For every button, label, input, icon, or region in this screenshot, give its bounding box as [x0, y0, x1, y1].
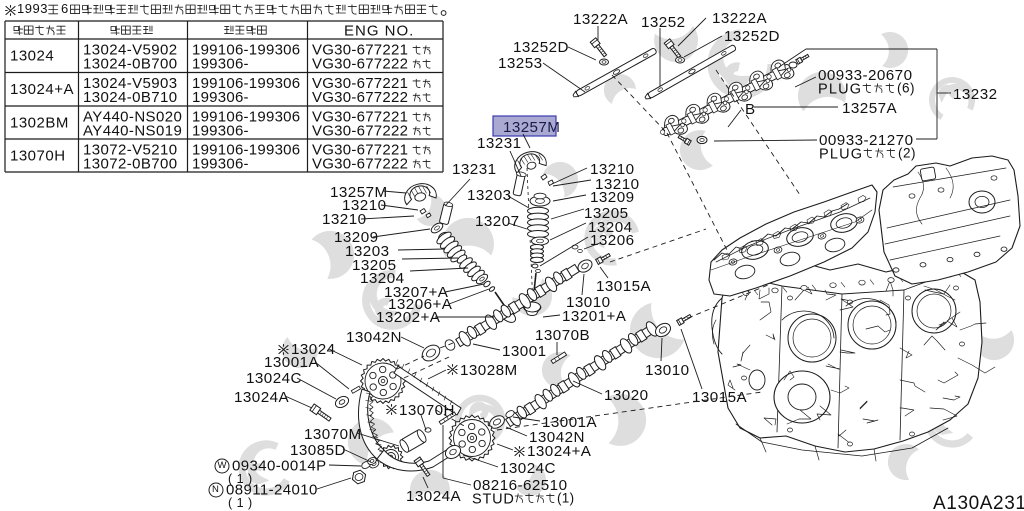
svg-text:13010: 13010: [566, 294, 610, 311]
svg-text:1993: 1993: [17, 1, 48, 16]
svg-text:A130A231: A130A231: [933, 493, 1024, 511]
svg-text:13015A: 13015A: [596, 278, 651, 295]
svg-text:STUD: STUD: [472, 491, 515, 507]
svg-text:6: 6: [61, 1, 68, 16]
svg-text:13070B: 13070B: [535, 327, 590, 344]
svg-text:13257A: 13257A: [842, 100, 897, 117]
svg-text:13072-0B700: 13072-0B700: [83, 156, 177, 173]
svg-text:W: W: [218, 460, 227, 471]
svg-text:13024C: 13024C: [500, 460, 556, 477]
svg-text:13253: 13253: [498, 55, 542, 72]
svg-text:13010: 13010: [645, 362, 689, 379]
svg-text:13024A: 13024A: [234, 389, 289, 406]
svg-text:199306-: 199306-: [192, 156, 249, 173]
svg-text:(6): (6): [897, 81, 915, 96]
svg-text:(2): (2): [898, 146, 916, 161]
svg-text:13015A: 13015A: [692, 389, 747, 406]
svg-text:13024+A: 13024+A: [527, 443, 592, 460]
svg-text:13001: 13001: [502, 343, 546, 360]
svg-text:13231: 13231: [452, 161, 496, 178]
svg-text:13042N: 13042N: [346, 329, 402, 346]
svg-text:13024+A: 13024+A: [10, 81, 74, 98]
svg-text:VG30-677222: VG30-677222: [312, 56, 408, 73]
svg-text:13252: 13252: [641, 14, 685, 31]
svg-text:13070M: 13070M: [304, 426, 362, 443]
svg-text:13210: 13210: [322, 211, 366, 228]
svg-text:13231: 13231: [477, 135, 521, 152]
svg-text:13020: 13020: [604, 387, 648, 404]
svg-text:ENG NO.: ENG NO.: [344, 23, 414, 40]
svg-text:13222A: 13222A: [573, 11, 628, 28]
svg-text:13024C: 13024C: [246, 370, 302, 387]
svg-text:13202+A: 13202+A: [376, 309, 441, 326]
svg-text:N: N: [212, 484, 219, 495]
svg-text:13085D: 13085D: [290, 442, 346, 459]
svg-text:PLUG: PLUG: [818, 81, 862, 97]
svg-text:AY440-NS019: AY440-NS019: [83, 123, 182, 140]
svg-text:PLUG: PLUG: [819, 146, 863, 162]
svg-text:199306-: 199306-: [192, 89, 249, 106]
svg-text:VG30-677222: VG30-677222: [312, 89, 408, 106]
svg-text:13024-0B710: 13024-0B710: [83, 89, 177, 106]
svg-text:13257M: 13257M: [503, 119, 560, 136]
svg-text:13024: 13024: [10, 48, 54, 65]
svg-text:13206: 13206: [590, 232, 634, 249]
svg-text:199306-: 199306-: [192, 123, 249, 140]
svg-text:1302BM: 1302BM: [10, 115, 69, 132]
svg-text:13252D: 13252D: [724, 28, 780, 45]
svg-text:13024A: 13024A: [406, 488, 461, 505]
svg-text:13207: 13207: [475, 213, 519, 230]
svg-text:( 1 ): ( 1 ): [228, 496, 253, 510]
svg-text:13028M: 13028M: [460, 362, 518, 379]
svg-text:13232: 13232: [953, 86, 997, 103]
svg-text:13203: 13203: [467, 187, 511, 204]
svg-text:13252D: 13252D: [513, 39, 569, 56]
svg-text:VG30-677222: VG30-677222: [312, 123, 408, 140]
svg-text:VG30-677222: VG30-677222: [312, 156, 408, 173]
svg-text:(1): (1): [557, 491, 574, 506]
svg-text:13024-0B700: 13024-0B700: [83, 56, 177, 73]
svg-text:199306-: 199306-: [192, 56, 249, 73]
svg-text:13070H: 13070H: [10, 148, 66, 165]
svg-text:13222A: 13222A: [712, 10, 767, 27]
svg-text:13209: 13209: [590, 189, 634, 206]
